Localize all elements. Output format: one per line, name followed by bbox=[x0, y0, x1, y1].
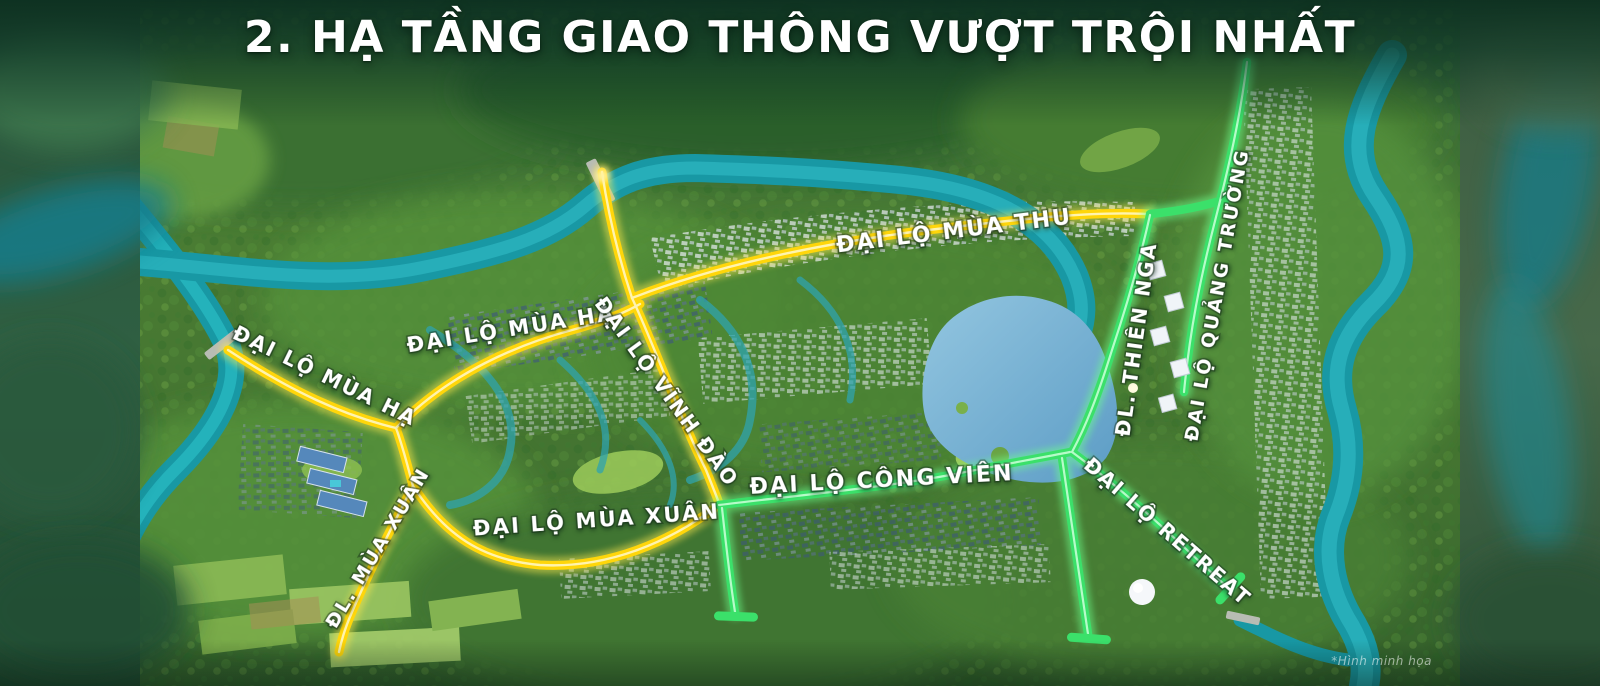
disclaimer-note: *Hình minh họa bbox=[1331, 654, 1432, 668]
dome-building bbox=[1129, 579, 1155, 605]
blur-edge-right bbox=[1450, 0, 1600, 686]
page-title: 2. HẠ TẦNG GIAO THÔNG VƯỢT TRỘI NHẤT bbox=[0, 12, 1600, 63]
aerial-map: ĐẠI LỘ MÙA THU ĐẠI LỘ MÙA HẠ ĐẠI LỘ MÙA … bbox=[0, 0, 1600, 686]
slide: ĐẠI LỘ MÙA THU ĐẠI LỘ MÙA HẠ ĐẠI LỘ MÙA … bbox=[0, 0, 1600, 686]
